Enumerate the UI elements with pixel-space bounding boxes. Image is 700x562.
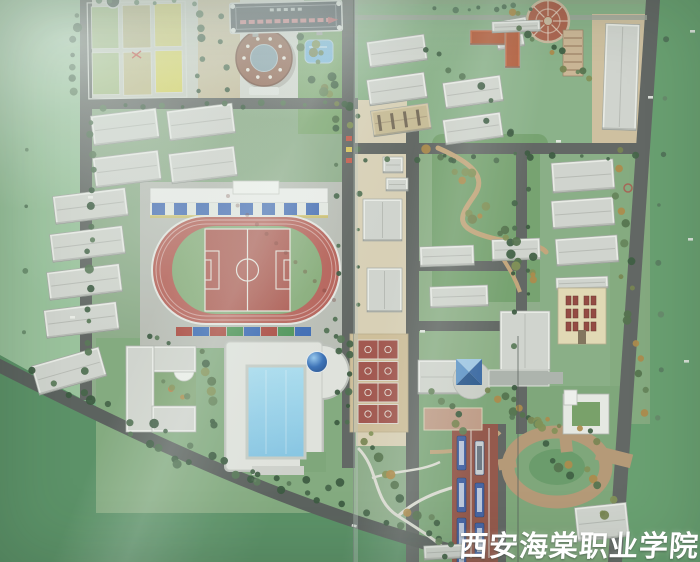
tree <box>319 87 328 96</box>
tree <box>357 265 360 268</box>
tree <box>155 335 160 340</box>
tree <box>512 309 517 314</box>
tree <box>386 470 395 479</box>
tree <box>208 396 217 405</box>
tree <box>559 47 566 54</box>
tree <box>552 428 558 434</box>
tree <box>205 101 210 106</box>
tree <box>316 60 321 65</box>
tree <box>494 396 501 403</box>
tree <box>509 9 516 16</box>
tree <box>363 158 367 162</box>
tree <box>334 420 339 425</box>
tree <box>149 419 159 429</box>
tree <box>297 33 304 40</box>
plaque-glyph <box>298 8 302 11</box>
tree <box>483 118 489 124</box>
tree <box>384 520 390 526</box>
stand-panel <box>284 203 297 215</box>
press-box <box>233 181 279 194</box>
tree <box>347 371 352 376</box>
tree <box>566 472 574 480</box>
tree <box>218 13 224 19</box>
tree <box>638 355 644 361</box>
tree <box>334 193 340 199</box>
tree <box>445 67 451 73</box>
gym-roof-dot <box>278 44 282 48</box>
color-tile <box>244 327 260 336</box>
tree <box>69 74 76 81</box>
stadium <box>150 181 340 336</box>
tree <box>432 6 436 10</box>
reflection-dot <box>332 298 336 302</box>
red-window <box>584 309 589 318</box>
tree <box>477 213 482 218</box>
tree <box>22 268 28 274</box>
tree <box>163 429 168 434</box>
tree <box>334 101 339 106</box>
tree <box>24 205 28 209</box>
tree <box>453 7 459 13</box>
tree <box>619 274 624 279</box>
plaque-glyph <box>240 20 246 24</box>
tree <box>428 388 434 394</box>
white-building <box>420 245 475 267</box>
tree <box>628 257 636 265</box>
basketball-court <box>358 340 398 359</box>
tree <box>338 501 345 508</box>
tree <box>345 388 352 395</box>
tree <box>443 154 447 158</box>
tree <box>437 154 444 161</box>
red-window <box>573 322 578 331</box>
model-scene <box>0 0 700 562</box>
tree <box>84 249 90 255</box>
tree <box>208 452 216 460</box>
football-field <box>205 229 290 311</box>
tree <box>452 420 460 428</box>
tree <box>200 56 206 62</box>
reflection-dot <box>293 260 297 264</box>
white-building <box>555 235 619 266</box>
tree <box>253 478 260 485</box>
tree <box>525 150 531 156</box>
red-window <box>584 322 589 331</box>
tree <box>181 105 185 109</box>
tree <box>527 292 530 295</box>
tree <box>196 89 200 93</box>
tree <box>514 152 517 155</box>
white-building <box>500 311 550 371</box>
tree <box>28 367 35 374</box>
reflection-dot <box>245 213 249 217</box>
tree <box>357 228 360 231</box>
red-window <box>566 309 571 318</box>
tree <box>588 428 593 433</box>
tree <box>305 490 310 495</box>
tree <box>429 514 435 520</box>
reflection-dot <box>284 251 288 255</box>
bench-dot <box>648 96 653 99</box>
tree <box>87 319 92 324</box>
tree <box>576 70 580 74</box>
tree <box>66 392 72 398</box>
tree <box>658 311 664 317</box>
bench-dot <box>556 140 561 143</box>
tree <box>461 168 469 176</box>
tree <box>477 82 485 90</box>
white-building <box>551 159 615 193</box>
tree <box>357 191 363 197</box>
tree <box>584 466 590 472</box>
plaque-glyph <box>249 20 255 24</box>
tree <box>85 264 94 273</box>
basketball-court <box>358 383 398 402</box>
tree <box>195 74 200 79</box>
tree <box>489 98 494 103</box>
tree <box>356 303 360 307</box>
tree <box>622 219 630 227</box>
tree <box>554 463 564 473</box>
tree <box>274 475 280 481</box>
tree <box>355 146 361 152</box>
tree <box>459 73 466 80</box>
tree <box>557 424 561 428</box>
tree <box>655 415 660 420</box>
tree <box>448 157 454 163</box>
tree <box>551 45 556 50</box>
tree <box>663 96 668 101</box>
tree <box>535 420 544 429</box>
tree <box>374 453 384 463</box>
tree <box>545 417 550 422</box>
color-tile <box>227 327 243 336</box>
tree <box>91 167 97 173</box>
tree <box>564 461 572 469</box>
plaque-glyph <box>300 18 306 22</box>
red-window <box>573 309 578 318</box>
bench-dot <box>688 238 693 241</box>
bench-dot <box>690 30 695 33</box>
tree <box>497 231 503 237</box>
tree <box>550 458 556 464</box>
tree <box>659 367 664 372</box>
tree <box>511 271 515 275</box>
white-building <box>367 268 402 312</box>
bench-dot <box>70 316 75 319</box>
blue-dome <box>307 352 328 373</box>
gym-roof-dot <box>282 56 286 60</box>
tree <box>323 100 327 104</box>
tree <box>468 8 471 11</box>
tree <box>318 50 323 55</box>
tree <box>520 412 526 418</box>
color-tile <box>261 327 277 336</box>
watermark-text: 西安海棠职业学院 <box>446 532 700 561</box>
pyramid-skylight <box>456 359 482 385</box>
tree <box>328 72 337 81</box>
tree <box>153 1 157 5</box>
reflection-dot <box>313 279 317 283</box>
bench-dot <box>684 360 689 363</box>
gym-roof-dot <box>278 68 282 72</box>
tree <box>241 105 246 110</box>
tree <box>167 341 171 345</box>
tree <box>516 25 522 31</box>
tree <box>333 125 340 132</box>
tree <box>255 472 261 478</box>
plaque-glyph <box>284 8 288 11</box>
tree <box>618 208 625 215</box>
tree <box>543 440 550 447</box>
tree <box>550 50 555 55</box>
tree <box>51 380 57 386</box>
tower-court-building <box>563 390 609 434</box>
gym-roof-dot <box>242 56 246 60</box>
red-window <box>591 296 596 305</box>
tree <box>277 486 285 494</box>
tree <box>369 431 374 436</box>
reflection-dot <box>322 289 326 293</box>
tree <box>529 7 533 11</box>
plaque-glyph <box>274 19 280 23</box>
gym-roof-dot <box>256 37 260 41</box>
tree <box>22 330 26 334</box>
tree <box>530 276 537 283</box>
gym-roof-dot <box>246 44 250 48</box>
tree <box>87 202 95 210</box>
color-tile <box>176 327 192 336</box>
tree <box>509 414 515 420</box>
tree <box>85 348 92 355</box>
stand-panel <box>196 203 209 215</box>
tree <box>201 367 210 376</box>
stand-panel <box>218 203 231 215</box>
tree <box>202 360 210 368</box>
reflection-dot <box>236 203 240 207</box>
tree <box>173 460 182 469</box>
white-building <box>363 199 402 241</box>
basketball-courts <box>350 334 408 432</box>
tree <box>468 215 477 224</box>
tree <box>458 177 466 185</box>
tree <box>414 157 420 163</box>
tree <box>222 101 228 107</box>
tree <box>336 478 345 487</box>
gym-entrance <box>249 87 279 95</box>
tree <box>370 445 375 450</box>
tree <box>81 389 88 396</box>
stand-panel <box>262 203 275 215</box>
tree <box>633 340 640 347</box>
tree <box>140 104 145 109</box>
tree <box>421 144 430 153</box>
plaque-glyph <box>257 20 263 24</box>
tree <box>435 538 442 545</box>
bus <box>475 483 484 517</box>
reflection-dot <box>226 194 230 198</box>
white-building <box>602 23 640 130</box>
tree <box>309 48 318 57</box>
gym-roof-dot <box>268 37 272 41</box>
color-tile <box>193 327 209 336</box>
tree <box>657 203 661 207</box>
tree <box>526 187 531 192</box>
red-window-facade-building <box>558 288 606 344</box>
tree <box>346 340 353 347</box>
tree <box>147 334 152 339</box>
tree <box>403 509 411 517</box>
tree <box>196 10 204 18</box>
bench-dot <box>420 330 425 333</box>
tree <box>346 404 350 408</box>
tree <box>90 237 95 242</box>
tree <box>471 154 476 159</box>
tree <box>89 187 95 193</box>
tree <box>511 397 517 403</box>
tree <box>530 37 535 42</box>
tree <box>456 411 463 418</box>
tree <box>506 250 515 259</box>
tree <box>89 120 94 125</box>
tree <box>337 335 345 343</box>
tree <box>586 76 592 82</box>
tree <box>612 192 619 199</box>
tree <box>643 387 649 393</box>
white-building <box>386 178 408 191</box>
tree <box>297 43 305 51</box>
plaque-glyph <box>270 8 274 11</box>
tree <box>580 154 584 158</box>
tree <box>476 6 480 10</box>
tree <box>617 147 623 153</box>
tree <box>655 260 661 266</box>
tree <box>207 387 216 396</box>
tree <box>25 148 29 152</box>
tree <box>524 31 532 39</box>
basketball-court <box>358 405 398 424</box>
tree <box>384 156 390 162</box>
tree <box>73 23 82 32</box>
tree <box>459 427 467 435</box>
tree <box>526 269 530 273</box>
tree <box>126 419 133 426</box>
tree <box>663 36 669 42</box>
tree <box>661 152 666 157</box>
tree <box>345 420 350 425</box>
reflection-dot <box>265 232 269 236</box>
reflection-dot <box>303 270 307 274</box>
tree <box>333 317 338 322</box>
tree <box>396 494 405 503</box>
tree <box>526 225 530 229</box>
tree <box>423 47 429 53</box>
plaque-glyph <box>283 19 289 23</box>
tree <box>606 157 610 161</box>
tree <box>225 87 230 92</box>
plaque-glyph <box>266 19 272 23</box>
tree <box>250 469 255 474</box>
tree <box>155 444 163 452</box>
bus <box>457 436 466 470</box>
plaque-glyph <box>277 8 281 11</box>
tree <box>615 165 623 173</box>
tree <box>70 53 75 58</box>
tree <box>485 387 491 393</box>
tree <box>502 392 510 400</box>
tree <box>128 432 133 437</box>
plaque-glyph <box>309 18 315 22</box>
tree <box>502 4 507 9</box>
red-window <box>584 296 589 305</box>
tree <box>434 520 440 526</box>
tree <box>124 103 128 107</box>
tree <box>355 114 360 119</box>
tree <box>210 421 217 428</box>
bus <box>475 441 484 475</box>
tree <box>88 224 94 230</box>
red-window <box>566 322 571 331</box>
tree <box>81 367 89 375</box>
tree <box>331 81 339 89</box>
tree <box>197 34 205 42</box>
tree <box>232 471 240 479</box>
tree <box>512 237 521 246</box>
white-building <box>551 197 615 229</box>
campus-model-photo: 西安海棠职业学院 <box>0 0 700 562</box>
stand-panel <box>152 203 165 215</box>
tree <box>184 393 190 399</box>
tree <box>336 244 340 248</box>
tree <box>332 116 339 123</box>
tree <box>630 286 635 291</box>
white-building <box>492 20 540 33</box>
tree <box>511 261 520 270</box>
tree <box>341 101 347 107</box>
tree <box>632 152 639 159</box>
tree <box>512 200 518 206</box>
tree <box>516 11 521 16</box>
tree <box>223 64 229 70</box>
tree <box>449 403 455 409</box>
tree <box>412 511 421 520</box>
tree <box>100 105 107 112</box>
tree <box>146 440 154 448</box>
tree <box>70 88 78 96</box>
tree <box>218 39 223 44</box>
color-tile <box>210 327 226 336</box>
tree <box>360 438 367 445</box>
tree <box>187 443 193 449</box>
tree <box>220 457 228 465</box>
tree <box>335 390 340 395</box>
tree <box>192 2 197 7</box>
tree <box>89 151 96 158</box>
tree <box>593 481 601 489</box>
basketball-court <box>358 362 398 381</box>
tree <box>336 348 343 355</box>
tree <box>390 481 399 490</box>
tree <box>134 0 139 5</box>
tree <box>87 285 94 292</box>
tree <box>159 103 165 109</box>
bus <box>457 478 466 512</box>
tree <box>635 370 642 377</box>
gym-roof-dot <box>268 75 272 79</box>
tree <box>280 100 286 106</box>
tree <box>347 122 354 129</box>
reflection-dot <box>274 241 278 245</box>
